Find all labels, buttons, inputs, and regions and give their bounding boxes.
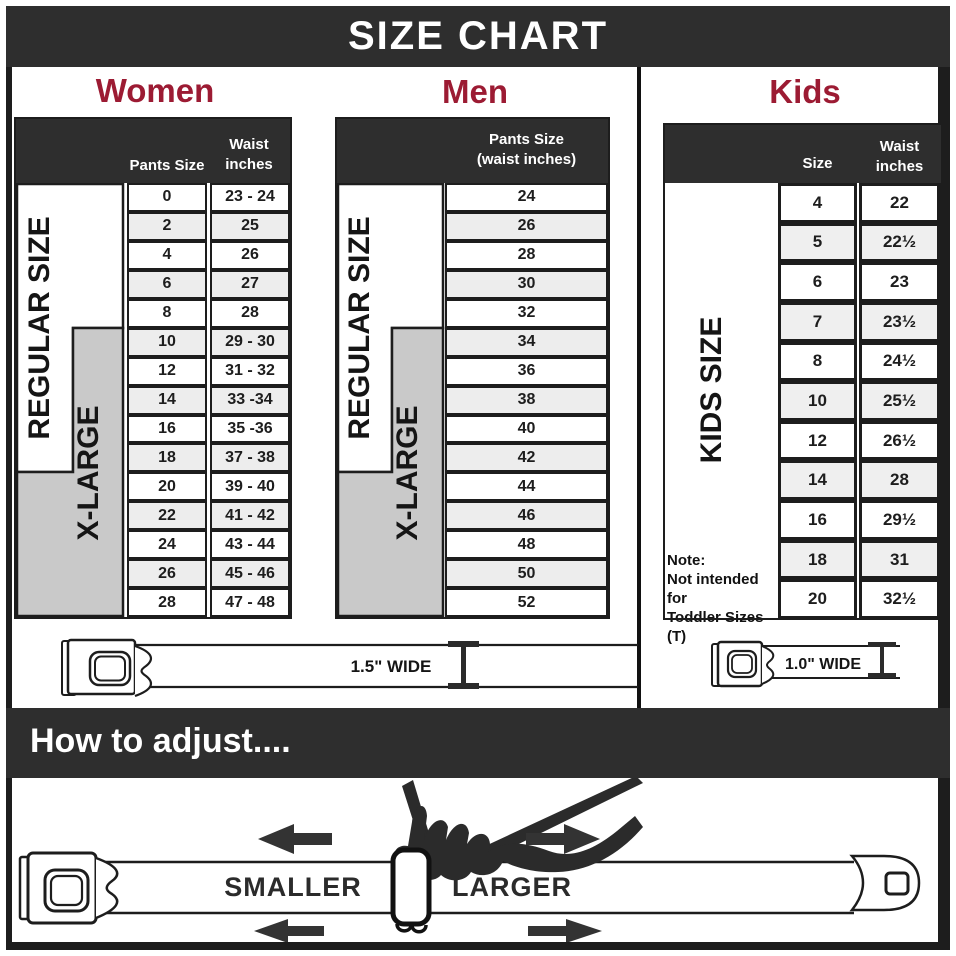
belt-illustration-adult: 1.5" WIDE <box>14 628 638 708</box>
table-row: 12 26½ <box>778 421 940 461</box>
buckle-latch <box>762 646 773 684</box>
waist-cell: 29½ <box>859 500 940 540</box>
waist-cell: 23 - 24 <box>210 183 290 212</box>
waist-cell: 25 <box>210 212 290 241</box>
women-regular-size-label: REGULAR SIZE <box>23 216 56 439</box>
waist-cell: 28 <box>210 299 290 328</box>
page-title: SIZE CHART <box>348 14 608 59</box>
kids-rows: 4 22 5 22½ 6 23 7 <box>778 183 940 619</box>
belt-illustration-kids: 1.0" WIDE <box>700 630 950 688</box>
table-row: 34 <box>445 328 608 357</box>
men-rows: 24 26 28 30 32 34 <box>445 183 608 617</box>
table-row: 8 24½ <box>778 342 940 382</box>
pants-size-cell: 8 <box>127 299 207 328</box>
kids-size-band-graphic: KIDS SIZE <box>665 185 777 605</box>
column-header-men: Men <box>355 72 595 112</box>
women-xlarge-label: X-LARGE <box>72 406 105 541</box>
pants-size-cell: 6 <box>127 270 207 299</box>
pants-size-cell: 26 <box>445 212 608 241</box>
arrow-left-icon <box>258 824 332 854</box>
pants-size-cell: 36 <box>445 357 608 386</box>
table-row: 26 45 - 46 <box>127 559 290 588</box>
buckle-latch <box>135 646 151 696</box>
pants-size-cell: 40 <box>445 415 608 444</box>
kids-col-header-size: Size <box>778 150 857 178</box>
table-row: 36 <box>445 357 608 386</box>
kids-note-title: Note: <box>667 551 779 570</box>
table-row: 40 <box>445 415 608 444</box>
size-cell: 6 <box>778 262 857 302</box>
waist-cell: 28 <box>859 460 940 500</box>
pants-size-cell: 14 <box>127 386 207 415</box>
table-row: 28 47 - 48 <box>127 588 290 617</box>
pants-size-cell: 20 <box>127 472 207 501</box>
buckle-button-inner <box>732 655 752 673</box>
table-row: 52 <box>445 588 608 617</box>
adjust-heading: How to adjust.... <box>30 722 291 761</box>
table-row: 14 33 -34 <box>127 386 290 415</box>
women-size-band-graphic: REGULAR SIZE X-LARGE <box>16 183 125 617</box>
waist-cell: 35 -36 <box>210 415 290 444</box>
table-row: 18 37 - 38 <box>127 443 290 472</box>
kids-col-header-waist-inches: Waist inches <box>859 134 940 180</box>
waist-cell: 22½ <box>859 223 940 263</box>
table-row: 16 35 -36 <box>127 415 290 444</box>
men-xlarge-label: X-LARGE <box>391 406 424 541</box>
table-row: 26 <box>445 212 608 241</box>
waist-cell: 43 - 44 <box>210 530 290 559</box>
waist-cell: 39 - 40 <box>210 472 290 501</box>
table-row: 48 <box>445 530 608 559</box>
size-cell: 4 <box>778 183 857 223</box>
pants-size-cell: 44 <box>445 472 608 501</box>
table-row: 14 28 <box>778 460 940 500</box>
waist-cell: 29 - 30 <box>210 328 290 357</box>
size-cell: 14 <box>778 460 857 500</box>
men-col-header-line1: Pants Size <box>445 130 608 150</box>
arrow-left-icon <box>254 919 324 942</box>
table-row: 5 22½ <box>778 223 940 263</box>
larger-label: LARGER <box>432 871 592 903</box>
table-row: 12 31 - 32 <box>127 357 290 386</box>
waist-cell: 31 - 32 <box>210 357 290 386</box>
frame-bottom <box>6 942 950 950</box>
pants-size-cell: 28 <box>127 588 207 617</box>
size-cell: 7 <box>778 302 857 342</box>
pants-size-cell: 28 <box>445 241 608 270</box>
table-row: 22 41 - 42 <box>127 501 290 530</box>
men-size-band-graphic: REGULAR SIZE X-LARGE <box>337 183 445 617</box>
women-col-header-waist-inches: Waist inches <box>208 132 290 178</box>
measure-bracket-icon <box>868 642 896 678</box>
women-col-header-pants-size: Pants Size <box>127 154 207 178</box>
waist-cell: 45 - 46 <box>210 559 290 588</box>
table-row: 32 <box>445 299 608 328</box>
pants-size-cell: 38 <box>445 386 608 415</box>
table-row: 38 <box>445 386 608 415</box>
size-cell: 8 <box>778 342 857 382</box>
pants-size-cell: 12 <box>127 357 207 386</box>
table-row: 4 22 <box>778 183 940 223</box>
kids-note-line1: Not intended for <box>667 570 779 608</box>
pants-size-cell: 2 <box>127 212 207 241</box>
waist-cell: 25½ <box>859 381 940 421</box>
pants-size-cell: 42 <box>445 443 608 472</box>
slide-adjuster <box>393 850 429 924</box>
pants-size-cell: 46 <box>445 501 608 530</box>
waist-cell: 22 <box>859 183 940 223</box>
table-row: 44 <box>445 472 608 501</box>
table-row: 6 27 <box>127 270 290 299</box>
table-row: 28 <box>445 241 608 270</box>
table-row: 46 <box>445 501 608 530</box>
waist-cell: 33 -34 <box>210 386 290 415</box>
pants-size-cell: 52 <box>445 588 608 617</box>
table-row: 10 25½ <box>778 381 940 421</box>
pants-size-cell: 24 <box>127 530 207 559</box>
size-cell: 5 <box>778 223 857 263</box>
pants-size-cell: 34 <box>445 328 608 357</box>
pants-size-cell: 48 <box>445 530 608 559</box>
waist-cell: 32½ <box>859 579 940 619</box>
table-row: 24 43 - 44 <box>127 530 290 559</box>
pants-size-cell: 30 <box>445 270 608 299</box>
size-cell: 12 <box>778 421 857 461</box>
waist-cell: 23 <box>859 262 940 302</box>
pants-size-cell: 22 <box>127 501 207 530</box>
buckle-button-inner <box>95 657 125 681</box>
belt-width-label-adult: 1.5" WIDE <box>351 657 432 676</box>
men-regular-size-label: REGULAR SIZE <box>343 216 376 439</box>
pants-size-cell: 32 <box>445 299 608 328</box>
kids-note: Note: Not intended for Toddler Sizes (T) <box>667 551 779 615</box>
waist-cell: 47 - 48 <box>210 588 290 617</box>
waist-cell: 24½ <box>859 342 940 382</box>
table-row: 2 25 <box>127 212 290 241</box>
buckle-button-inner <box>51 876 82 905</box>
waist-cell: 26 <box>210 241 290 270</box>
arrow-right-icon <box>528 919 602 942</box>
women-rows: 0 23 - 24 2 25 4 26 6 <box>127 183 290 617</box>
pants-size-cell: 4 <box>127 241 207 270</box>
smaller-label: SMALLER <box>213 871 373 903</box>
table-row: 20 32½ <box>778 579 940 619</box>
table-row: 10 29 - 30 <box>127 328 290 357</box>
pants-size-cell: 16 <box>127 415 207 444</box>
waist-cell: 27 <box>210 270 290 299</box>
table-row: 4 26 <box>127 241 290 270</box>
size-chart-graphic: SIZE CHART Women Men Kids Pants Size Wai… <box>0 0 956 956</box>
pants-size-cell: 50 <box>445 559 608 588</box>
belt-tip-slot <box>886 873 908 894</box>
waist-cell: 37 - 38 <box>210 443 290 472</box>
table-row: 24 <box>445 183 608 212</box>
pants-size-cell: 18 <box>127 443 207 472</box>
size-cell: 20 <box>778 579 857 619</box>
buckle-latch <box>96 858 117 918</box>
section-divider <box>637 67 641 708</box>
table-row: 6 23 <box>778 262 940 302</box>
kids-size-label: KIDS SIZE <box>695 317 728 464</box>
title-banner: SIZE CHART <box>6 6 950 67</box>
table-row: 20 39 - 40 <box>127 472 290 501</box>
table-row: 42 <box>445 443 608 472</box>
waist-cell: 26½ <box>859 421 940 461</box>
table-row: 16 29½ <box>778 500 940 540</box>
size-cell: 16 <box>778 500 857 540</box>
table-row: 0 23 - 24 <box>127 183 290 212</box>
size-cell: 18 <box>778 540 857 580</box>
adjust-heading-band: How to adjust.... <box>6 708 950 778</box>
men-col-header-line2: (waist inches) <box>445 150 608 170</box>
pants-size-cell: 10 <box>127 328 207 357</box>
table-row: 8 28 <box>127 299 290 328</box>
table-row: 18 31 <box>778 540 940 580</box>
column-header-women: Women <box>30 70 280 112</box>
waist-cell: 23½ <box>859 302 940 342</box>
pants-size-cell: 26 <box>127 559 207 588</box>
column-header-kids: Kids <box>685 72 925 112</box>
belt-width-label-kids: 1.0" WIDE <box>785 656 861 673</box>
table-row: 7 23½ <box>778 302 940 342</box>
measure-bracket-icon <box>448 641 479 689</box>
pants-size-cell: 24 <box>445 183 608 212</box>
pants-size-cell: 0 <box>127 183 207 212</box>
table-row: 30 <box>445 270 608 299</box>
table-row: 50 <box>445 559 608 588</box>
adjust-illustration <box>6 778 950 942</box>
size-cell: 10 <box>778 381 857 421</box>
waist-cell: 31 <box>859 540 940 580</box>
waist-cell: 41 - 42 <box>210 501 290 530</box>
